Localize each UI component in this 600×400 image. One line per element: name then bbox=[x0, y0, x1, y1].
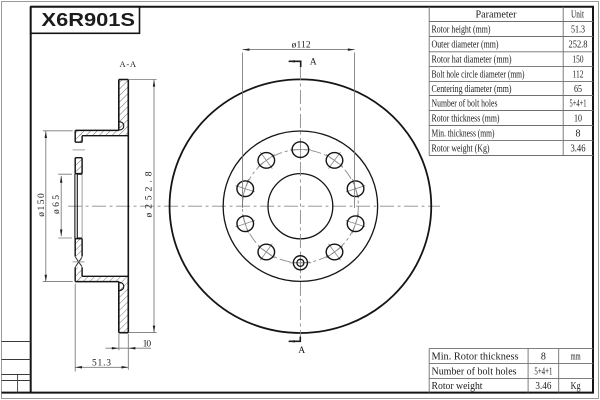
svg-text:51.3: 51.3 bbox=[92, 359, 111, 369]
svg-text:10: 10 bbox=[143, 340, 152, 350]
svg-text:3.46: 3.46 bbox=[535, 381, 551, 392]
svg-text:Rotor thickness (mm): Rotor thickness (mm) bbox=[432, 113, 500, 124]
svg-text:65: 65 bbox=[574, 84, 582, 95]
svg-text:150: 150 bbox=[573, 55, 584, 66]
svg-text:Parameter: Parameter bbox=[476, 9, 518, 20]
svg-text:A: A bbox=[310, 57, 317, 68]
svg-text:Rotor weight: Rotor weight bbox=[432, 381, 483, 392]
svg-text:Kg: Kg bbox=[571, 381, 581, 392]
svg-text:8: 8 bbox=[541, 352, 546, 363]
svg-text:8: 8 bbox=[576, 128, 581, 139]
svg-text:Unit: Unit bbox=[571, 9, 584, 20]
svg-text:Min. Rotor thickness: Min. Rotor thickness bbox=[432, 352, 519, 363]
svg-text:A: A bbox=[298, 345, 305, 356]
svg-text:Number of bolt holes: Number of bolt holes bbox=[432, 98, 498, 109]
svg-text:mm: mm bbox=[571, 352, 581, 363]
svg-text:ø65: ø65 bbox=[52, 195, 62, 214]
svg-text:ø150: ø150 bbox=[37, 193, 47, 217]
svg-text:112: 112 bbox=[573, 69, 584, 80]
svg-text:5+4+1: 5+4+1 bbox=[570, 98, 587, 109]
svg-text:Rotor hat diameter (mm): Rotor hat diameter (mm) bbox=[432, 55, 512, 66]
svg-text:Rotor weight (Kg): Rotor weight (Kg) bbox=[432, 143, 490, 154]
svg-text:Outer diameter (mm): Outer diameter (mm) bbox=[432, 40, 499, 51]
svg-text:Rotor height (mm): Rotor height (mm) bbox=[432, 24, 491, 35]
svg-text:10: 10 bbox=[574, 113, 582, 124]
svg-text:51.3: 51.3 bbox=[571, 24, 585, 35]
svg-text:Bolt hole circle diameter (mm): Bolt hole circle diameter (mm) bbox=[432, 69, 525, 80]
svg-text:5+4+1: 5+4+1 bbox=[534, 367, 552, 378]
svg-text:X6R901S: X6R901S bbox=[42, 9, 136, 30]
svg-text:ø112: ø112 bbox=[292, 40, 311, 50]
svg-text:Number of bolt holes: Number of bolt holes bbox=[432, 367, 517, 378]
svg-text:3.46: 3.46 bbox=[571, 143, 586, 154]
svg-text:252.8: 252.8 bbox=[569, 40, 588, 51]
svg-text:A-A: A-A bbox=[120, 59, 137, 69]
svg-text:Min. thickness (mm): Min. thickness (mm) bbox=[432, 128, 495, 139]
svg-text:Centering diameter (mm): Centering diameter (mm) bbox=[432, 84, 512, 95]
